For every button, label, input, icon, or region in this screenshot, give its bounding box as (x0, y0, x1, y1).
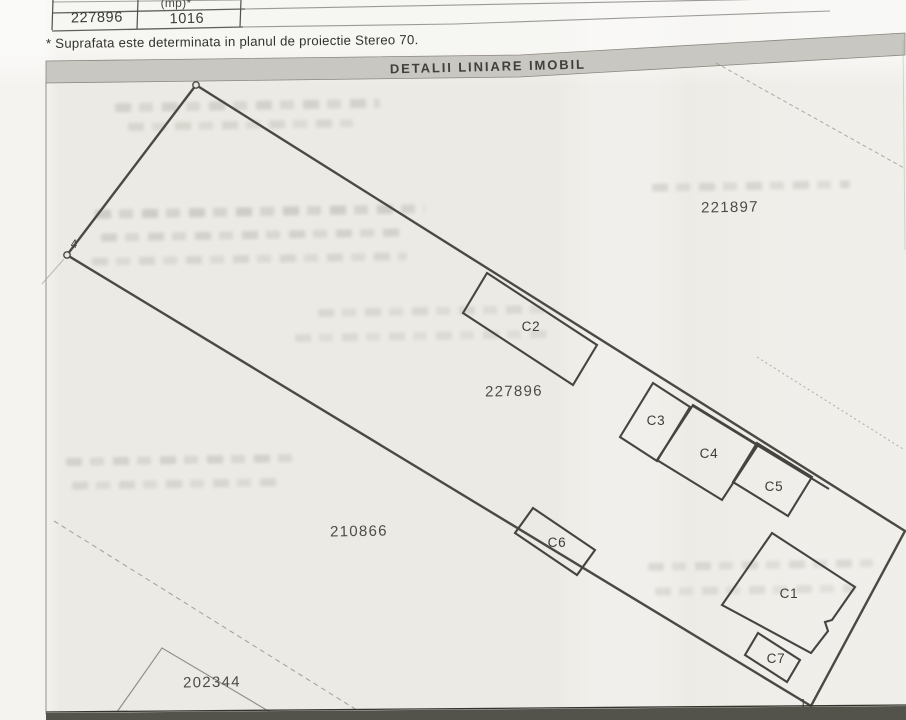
table-border (240, 0, 241, 27)
parcel-label-202344: 202344 (183, 673, 241, 691)
table-cell-parcel-number: 227896 (71, 10, 123, 27)
table-border (137, 0, 138, 29)
table-header-area-mp: (mp)* (161, 0, 192, 10)
map-right-border (903, 40, 905, 250)
building-label-c4: C4 (700, 446, 719, 461)
table-border (52, 0, 240, 2)
cadastral-plan-svg: (mp)* 227896 1016 * Suprafata este deter… (0, 0, 906, 720)
area-table-fragment: (mp)* 227896 1016 (52, 0, 830, 31)
parcel-label-221897: 221897 (701, 198, 759, 216)
boundary-point-marker (193, 82, 199, 88)
table-border (52, 0, 53, 30)
building-label-c1: C1 (780, 586, 799, 601)
parcel-label-210866: 210866 (330, 522, 388, 540)
table-cell-area-value: 1016 (169, 11, 204, 28)
table-border (243, 11, 830, 27)
neighbor-boundary-line (757, 357, 903, 449)
table-border (245, 0, 830, 9)
boundary-point-marker (64, 252, 70, 258)
boundary-point-label-4: 4 (71, 239, 78, 251)
building-label-c7: C7 (767, 651, 786, 666)
parcel-label-227896: 227896 (485, 382, 543, 400)
neighbor-boundary-line (42, 259, 64, 284)
building-label-c2: C2 (522, 319, 541, 334)
building-label-c3: C3 (647, 413, 666, 428)
table-border (52, 27, 243, 31)
building-label-c6: C6 (548, 535, 567, 550)
footnote-stereo70: * Suprafata este determinata in planul d… (46, 32, 419, 51)
buildings-group (463, 273, 855, 682)
neighbor-boundary-line (716, 63, 904, 168)
building-label-c5: C5 (765, 479, 784, 494)
